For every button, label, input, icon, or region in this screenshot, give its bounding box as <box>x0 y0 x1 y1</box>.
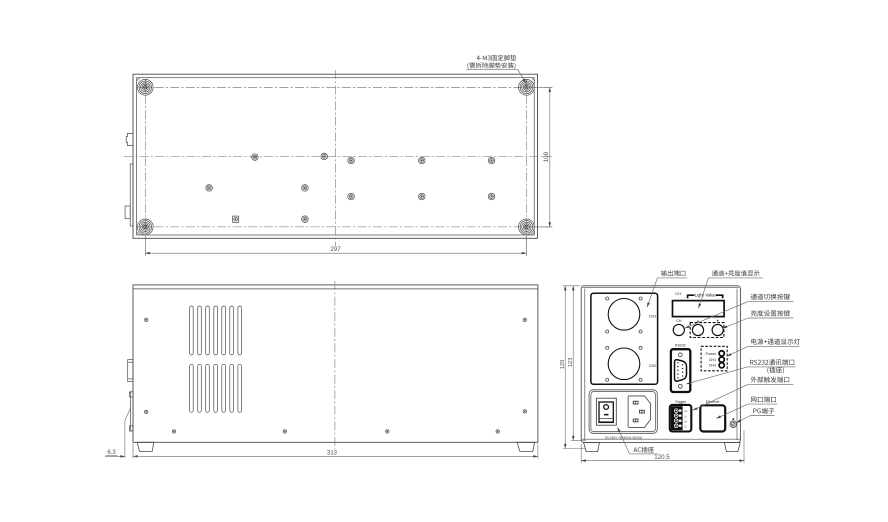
svg-text:90-240V~50/60Hz 800VA: 90-240V~50/60Hz 800VA <box>605 436 643 440</box>
svg-text:1-: 1- <box>684 414 687 418</box>
svg-text:Power: Power <box>706 352 717 356</box>
svg-text:297: 297 <box>330 246 341 253</box>
svg-text:CH1: CH1 <box>709 358 717 362</box>
svg-text:2-: 2- <box>684 424 687 428</box>
svg-text:Light Value: Light Value <box>695 292 717 297</box>
svg-text:CH: CH <box>675 291 681 296</box>
svg-text:109: 109 <box>543 151 550 162</box>
svg-text:CH2: CH2 <box>649 363 657 368</box>
svg-text:1+: 1+ <box>684 409 688 413</box>
svg-text:Trigger: Trigger <box>675 400 687 404</box>
svg-text:129: 129 <box>560 360 566 370</box>
svg-text:2+: 2+ <box>684 419 688 423</box>
svg-text:6.3: 6.3 <box>107 450 116 456</box>
svg-text:CH: CH <box>676 319 682 323</box>
svg-text:120.5: 120.5 <box>654 454 670 461</box>
svg-text:123: 123 <box>568 357 574 368</box>
svg-text:CH1: CH1 <box>649 313 657 318</box>
svg-text:RS232: RS232 <box>675 343 686 347</box>
svg-text:313: 313 <box>327 450 338 456</box>
svg-text:CH2: CH2 <box>709 364 717 368</box>
